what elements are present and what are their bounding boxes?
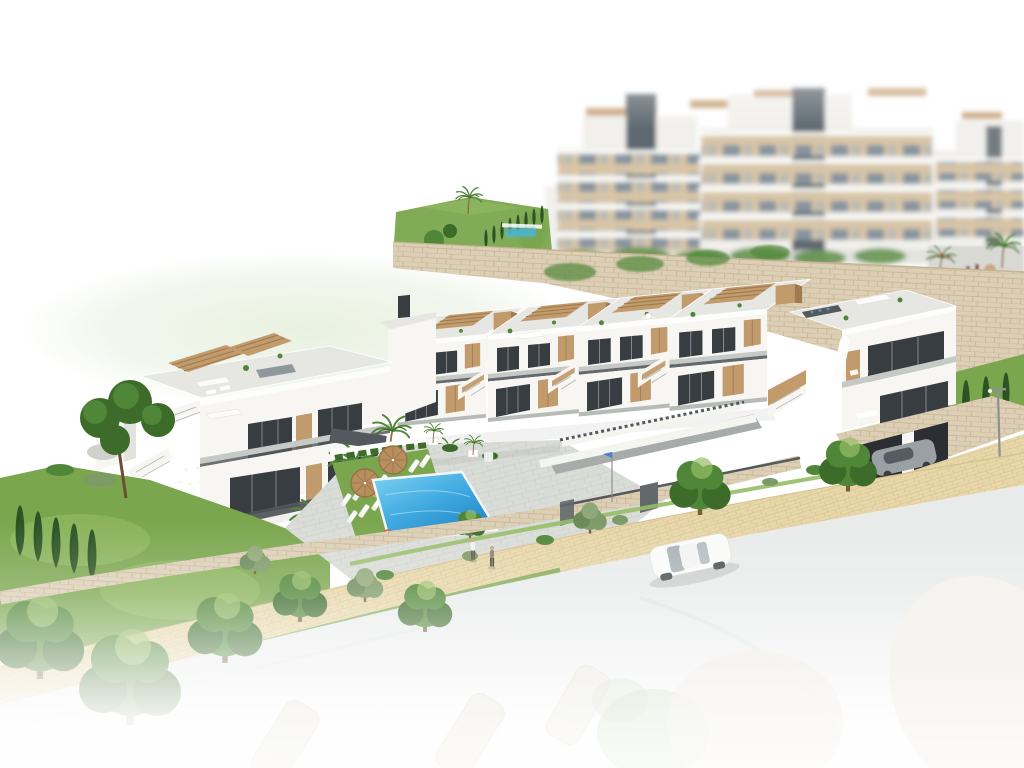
pool-umbrella-1 — [379, 446, 407, 474]
rendering-canvas: Aerial 3D architectural rendering of a w… — [0, 0, 1024, 768]
hill-mini-pool — [506, 228, 536, 237]
foreground-fade-overlay — [0, 660, 1024, 768]
background-fade — [520, 58, 1024, 130]
aerial-rendering — [0, 0, 1024, 768]
